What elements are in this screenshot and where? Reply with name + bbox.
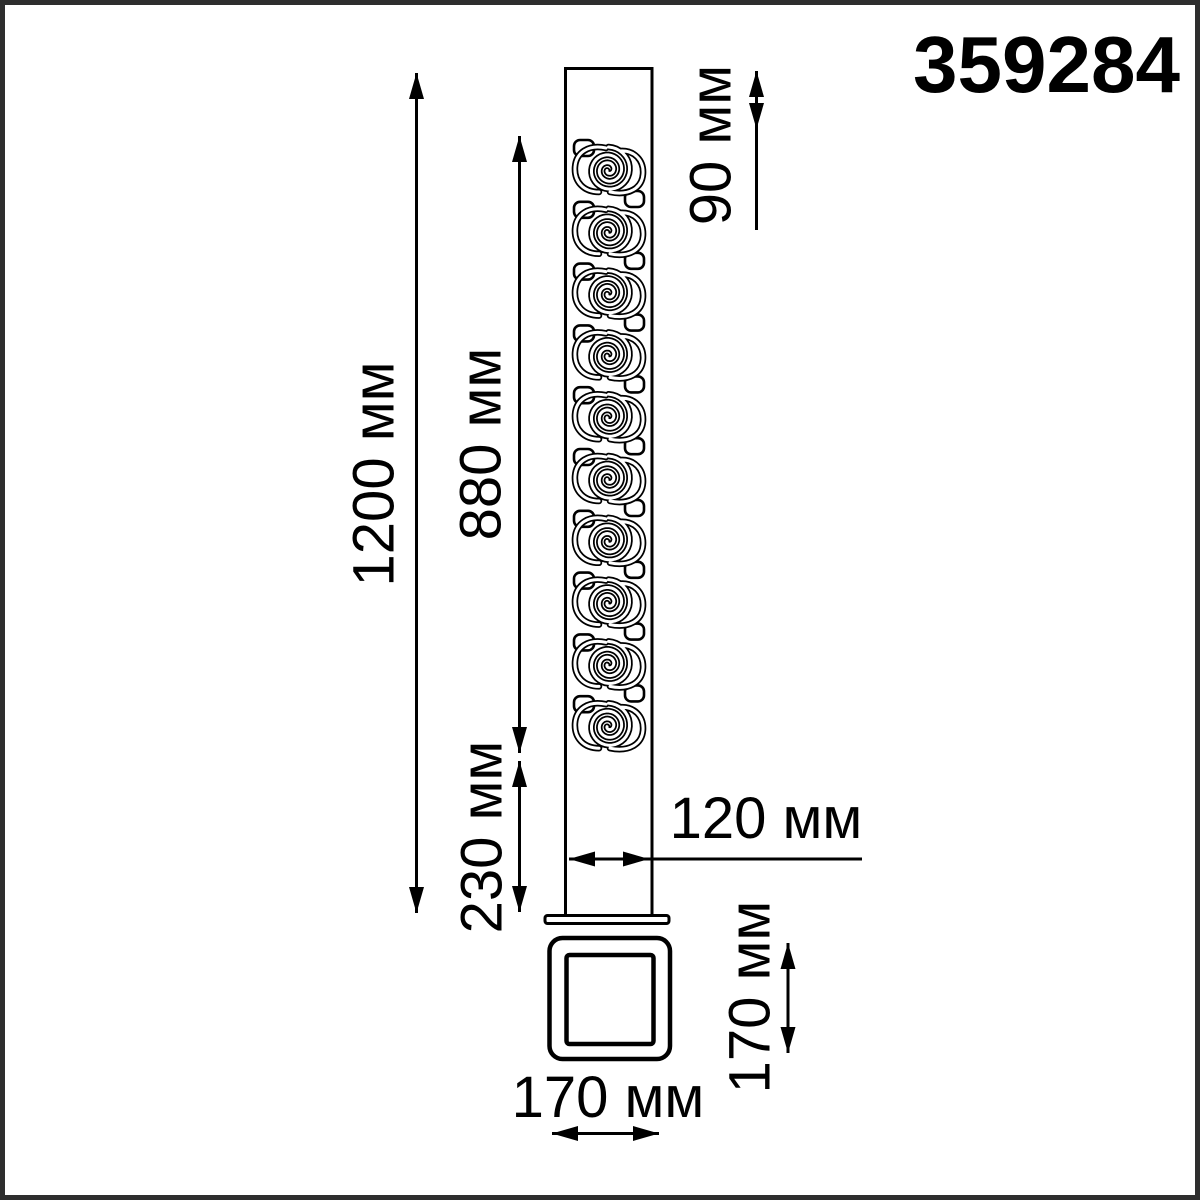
dimension-label-top-section: 90 мм [678, 65, 743, 225]
scroll-pattern [574, 140, 644, 749]
dimension-label-lower-section: 230 мм [449, 741, 514, 934]
dimension-label-pole-width: 120 мм [670, 786, 863, 851]
dimension-label-base-height: 170 мм [717, 901, 782, 1094]
dimension-label-base-width: 170 мм [512, 1065, 705, 1130]
product-code: 359284 [913, 20, 1180, 109]
dimension-label-total-height: 1200 мм [341, 362, 406, 587]
technical-drawing: 359284 1200 мм 880 мм 230 мм 90 мм 120 м… [5, 5, 1195, 1195]
dimension-label-decorative-section: 880 мм [448, 348, 513, 541]
drawing-frame: 359284 1200 мм 880 мм 230 мм 90 мм 120 м… [0, 0, 1200, 1200]
base-plate-inner [567, 955, 654, 1044]
flange [545, 916, 669, 924]
